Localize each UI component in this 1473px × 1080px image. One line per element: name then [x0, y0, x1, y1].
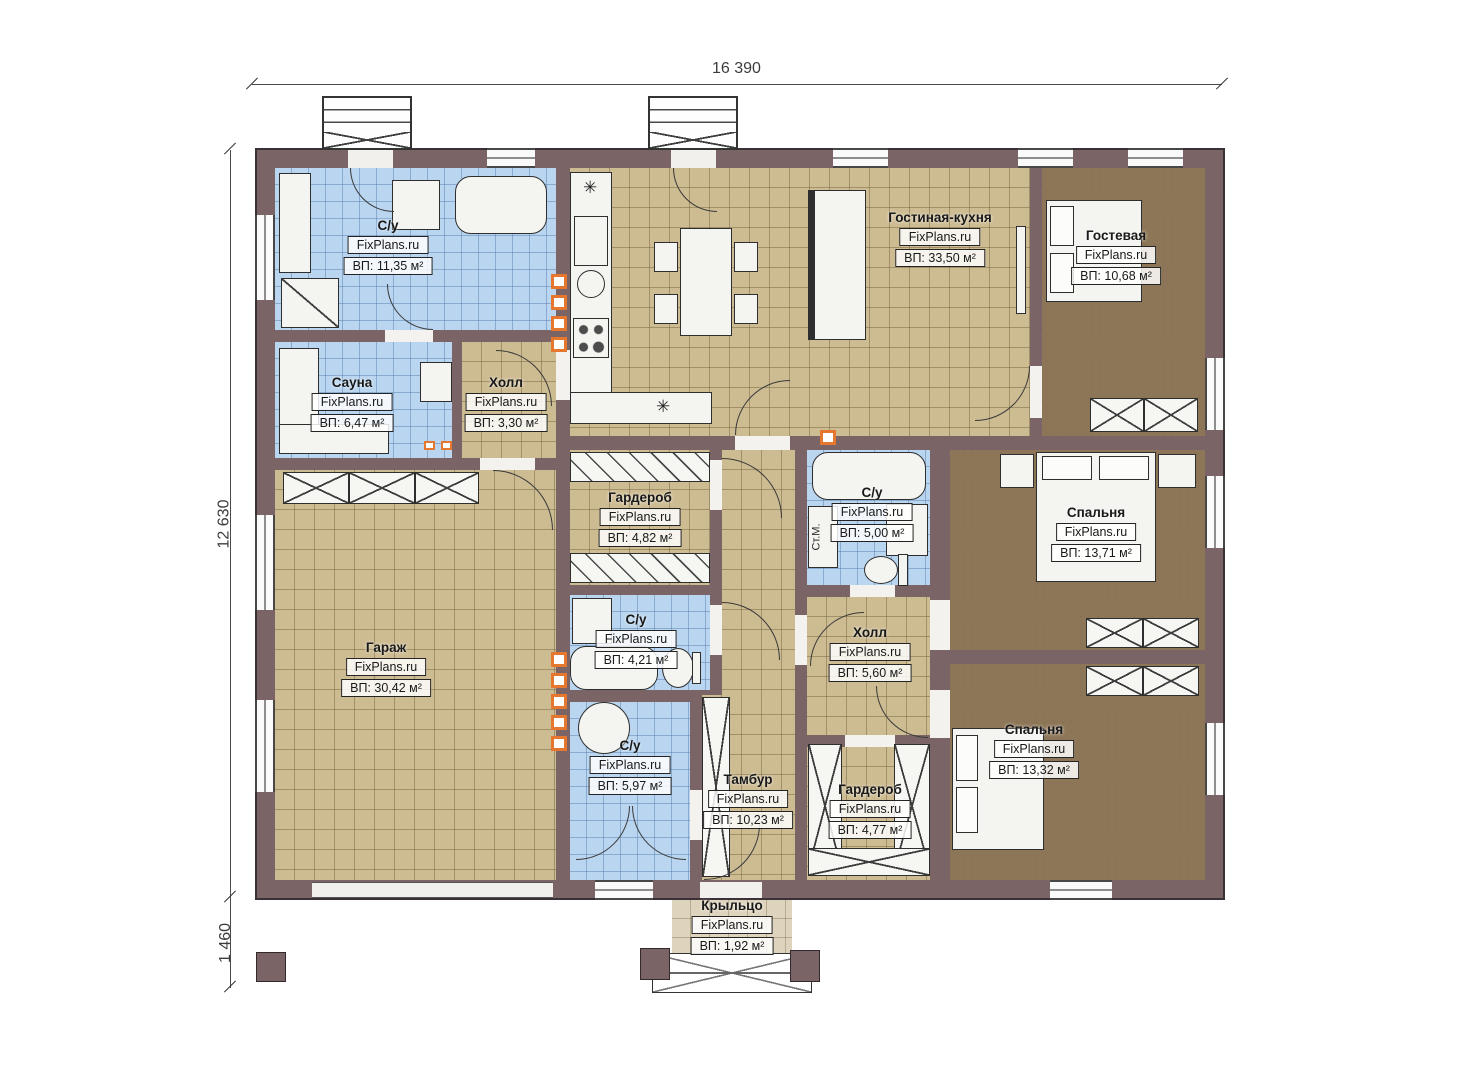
watermark: FixPlans.ru [346, 658, 427, 676]
door-opening [690, 790, 702, 840]
room-label-bathroom-1: С/у FixPlans.ru ВП: 11,35 м² [344, 218, 433, 275]
room-name: С/у [831, 485, 914, 500]
wardrobe-cabinet [349, 472, 415, 504]
wall-partition [930, 450, 950, 880]
door-opening [930, 600, 950, 650]
wardrobe-cabinet [283, 472, 349, 504]
window [1128, 148, 1183, 168]
dimension-width-label: 16 390 [712, 60, 761, 78]
window [1205, 358, 1225, 430]
room-name: Холл [829, 625, 912, 640]
door-opening [845, 735, 895, 747]
chair [654, 242, 678, 272]
room-area: ВП: 1,92 м² [691, 937, 774, 955]
vent-shaft [551, 715, 567, 730]
watermark: FixPlans.ru [692, 916, 773, 934]
room-name: Крыльцо [691, 898, 774, 913]
pillow [956, 735, 978, 781]
door-opening [735, 436, 790, 450]
watermark: FixPlans.ru [312, 393, 393, 411]
wardrobe-cabinet [1143, 618, 1199, 648]
room-area: ВП: 33,50 м² [895, 249, 985, 267]
room-label-bathroom-2: С/у FixPlans.ru ВП: 5,00 м² [831, 485, 914, 542]
vent-shaft [551, 274, 567, 289]
fridge [574, 216, 608, 266]
door-opening [480, 458, 535, 470]
room-name: Гараж [341, 640, 431, 655]
wall-partition [950, 650, 1205, 664]
door-opening [710, 605, 722, 655]
toilet-tank-3 [692, 652, 701, 684]
window [1018, 148, 1073, 168]
vent-shaft [551, 673, 567, 688]
room-area: ВП: 30,42 м² [341, 679, 431, 697]
watermark: FixPlans.ru [590, 756, 671, 774]
door-opening [795, 615, 807, 665]
wall-partition [452, 342, 462, 458]
shower-tray [281, 278, 339, 328]
watermark: FixPlans.ru [708, 790, 789, 808]
pillow [956, 787, 978, 833]
garage-door [312, 882, 553, 898]
window [255, 700, 275, 792]
sauna-heater-icon [424, 441, 435, 450]
bathtub-1 [455, 176, 547, 234]
toilet-2 [864, 556, 898, 584]
watermark: FixPlans.ru [832, 503, 913, 521]
chair [734, 242, 758, 272]
window [255, 515, 275, 610]
window [1050, 880, 1112, 900]
vent-glyph: ✳ [656, 397, 670, 416]
room-name: Сауна [311, 375, 394, 390]
room-area: ВП: 13,71 м² [1051, 544, 1141, 562]
door-opening [850, 585, 895, 597]
room-name: С/у [595, 612, 678, 627]
wardrobe-cabinet [1086, 618, 1143, 648]
room-label-bathroom-4: С/у FixPlans.ru ВП: 5,97 м² [589, 738, 672, 795]
room-label-sauna: Сауна FixPlans.ru ВП: 6,47 м² [311, 375, 394, 432]
wall-partition [795, 450, 807, 880]
entry-door-top-1 [348, 150, 393, 168]
watermark: FixPlans.ru [830, 800, 911, 818]
watermark: FixPlans.ru [994, 740, 1075, 758]
wardrobe-cabinet [1143, 666, 1199, 696]
bathroom-counter [279, 173, 311, 273]
room-area: ВП: 6,47 м² [311, 414, 394, 432]
kitchen-counter-bottom [570, 392, 712, 424]
room-label-hall-1: Холл FixPlans.ru ВП: 3,30 м² [465, 375, 548, 432]
vent-shaft [551, 295, 567, 310]
door-opening [385, 330, 433, 342]
sofa [808, 190, 866, 340]
room-area: ВП: 11,35 м² [344, 257, 433, 275]
window [833, 148, 888, 168]
room-name: Гостиная-кухня [888, 210, 991, 225]
door-opening [1030, 366, 1042, 418]
terrace-column [256, 952, 286, 982]
stove [573, 318, 609, 358]
dimension-porch-label: 1 460 [217, 923, 235, 963]
room-label-living-kitchen: Гостиная-кухня FixPlans.ru ВП: 33,50 м² [888, 210, 991, 267]
wall-partition [570, 585, 710, 595]
porch-column [790, 950, 820, 982]
ladder-brace [324, 132, 410, 148]
wardrobe-shelving [570, 553, 710, 583]
watermark: FixPlans.ru [596, 630, 677, 648]
room-label-wardrobe-2: Гардероб FixPlans.ru ВП: 4,77 м² [829, 782, 912, 839]
tv-unit [1016, 226, 1026, 314]
room-area: ВП: 10,68 м² [1071, 267, 1161, 285]
room-label-guest: Гостевая FixPlans.ru ВП: 10,68 м² [1071, 228, 1161, 285]
room-area: ВП: 13,32 м² [989, 761, 1079, 779]
room-area: ВП: 5,97 м² [589, 777, 672, 795]
watermark: FixPlans.ru [830, 643, 911, 661]
roof-ladder-left [322, 96, 412, 150]
sauna-heater-icon [441, 441, 452, 450]
vent-glyph: ✳ [583, 178, 597, 197]
nightstand [1000, 454, 1034, 488]
door-opening [930, 690, 950, 738]
room-label-bedroom-1: Спальня FixPlans.ru ВП: 13,71 м² [1051, 505, 1141, 562]
washing-machine-label: Ст.М. [811, 523, 823, 550]
window [1205, 476, 1225, 548]
room-name: Спальня [989, 722, 1079, 737]
wardrobe-cabinet [415, 472, 479, 504]
floor-plan-canvas: 16 390 12 630 1 460 [0, 0, 1473, 1080]
vent-shaft [551, 694, 567, 709]
porch-column [640, 948, 670, 980]
window [1205, 723, 1225, 795]
door-opening [710, 460, 722, 510]
window [255, 215, 275, 300]
chair [654, 294, 678, 324]
room-label-tambour: Тамбур FixPlans.ru ВП: 10,23 м² [703, 772, 793, 829]
porch-door [700, 882, 762, 898]
watermark: FixPlans.ru [348, 236, 429, 254]
vent-shaft [551, 736, 567, 751]
wardrobe-cabinet [1090, 398, 1144, 432]
porch-steps [652, 953, 812, 993]
wardrobe-cabinet [1144, 398, 1198, 432]
roof-ladder-center [648, 96, 738, 150]
toilet-tank-2 [898, 554, 908, 586]
vent-icon: ✳ [583, 179, 597, 196]
watermark: FixPlans.ru [466, 393, 547, 411]
vent-shaft [820, 430, 836, 445]
room-area: ВП: 5,60 м² [829, 664, 912, 682]
room-area: ВП: 5,00 м² [831, 524, 914, 542]
watermark: FixPlans.ru [600, 508, 681, 526]
wall-partition [690, 695, 702, 880]
door-opening [556, 350, 570, 400]
room-label-porch: Крыльцо FixPlans.ru ВП: 1,92 м² [691, 898, 774, 955]
vent-shaft [551, 337, 567, 352]
wardrobe-shelving [570, 452, 710, 482]
ladder-brace [650, 132, 736, 148]
watermark: FixPlans.ru [1056, 523, 1137, 541]
window [595, 880, 653, 900]
room-name: С/у [344, 218, 433, 233]
room-name: Гардероб [599, 490, 682, 505]
room-area: ВП: 4,77 м² [829, 821, 912, 839]
room-name: Холл [465, 375, 548, 390]
dimension-height-label: 12 630 [215, 500, 233, 549]
room-area: ВП: 4,21 м² [595, 651, 678, 669]
wardrobe-cabinet [1086, 666, 1143, 696]
room-name: Тамбур [703, 772, 793, 787]
vent-shaft [551, 652, 567, 667]
nightstand [1158, 454, 1196, 488]
wall-partition [556, 436, 1205, 450]
vent-icon: ✳ [656, 398, 670, 415]
room-name: Гостевая [1071, 228, 1161, 243]
watermark: FixPlans.ru [900, 228, 981, 246]
room-label-bathroom-3: С/у FixPlans.ru ВП: 4,21 м² [595, 612, 678, 669]
entry-door-top-2 [671, 150, 716, 168]
window [487, 148, 535, 168]
room-label-garage: Гараж FixPlans.ru ВП: 30,42 м² [341, 640, 431, 697]
wardrobe-shelving [808, 848, 930, 876]
room-name: С/у [589, 738, 672, 753]
pillow [1099, 456, 1149, 480]
room-area: ВП: 4,82 м² [599, 529, 682, 547]
room-label-bedroom-2: Спальня FixPlans.ru ВП: 13,32 м² [989, 722, 1079, 779]
pillow [1042, 456, 1092, 480]
room-label-hall-2: Холл FixPlans.ru ВП: 5,60 м² [829, 625, 912, 682]
room-area: ВП: 3,30 м² [465, 414, 548, 432]
wall-partition [570, 690, 702, 702]
watermark: FixPlans.ru [1076, 246, 1157, 264]
kitchen-counter-vertical [570, 172, 612, 424]
kitchen-sink [577, 270, 605, 298]
sauna-stove-box [420, 362, 452, 402]
dimension-line-top [252, 84, 1222, 85]
vent-shaft [551, 316, 567, 331]
room-area: ВП: 10,23 м² [703, 811, 793, 829]
chair [734, 294, 758, 324]
room-name: Гардероб [829, 782, 912, 797]
room-label-wardrobe-1: Гардероб FixPlans.ru ВП: 4,82 м² [599, 490, 682, 547]
dining-table [680, 228, 732, 336]
room-name: Спальня [1051, 505, 1141, 520]
